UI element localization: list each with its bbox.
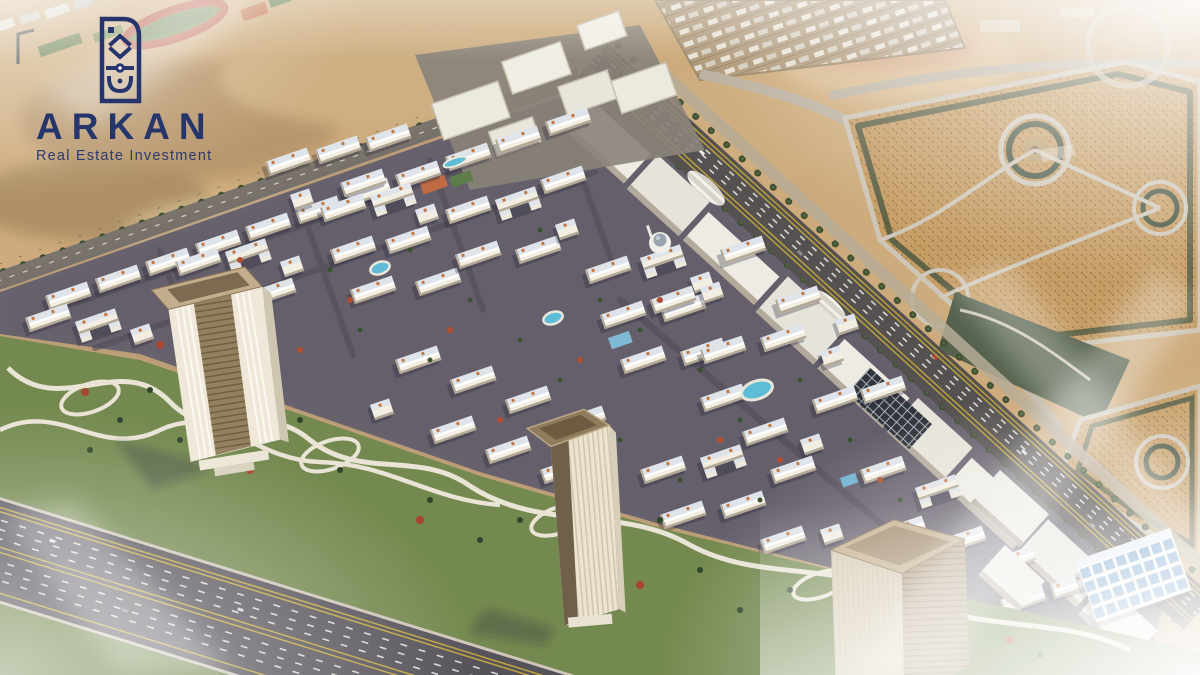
arkan-logo-mark-icon xyxy=(94,14,146,104)
logo-title: ARKAN xyxy=(36,108,266,145)
logo-tagline: Real Estate Investment xyxy=(36,148,266,164)
brand-logo: ARKAN Real Estate Investment xyxy=(36,8,266,164)
masterplan-hero: ARKAN Real Estate Investment xyxy=(0,0,1200,675)
